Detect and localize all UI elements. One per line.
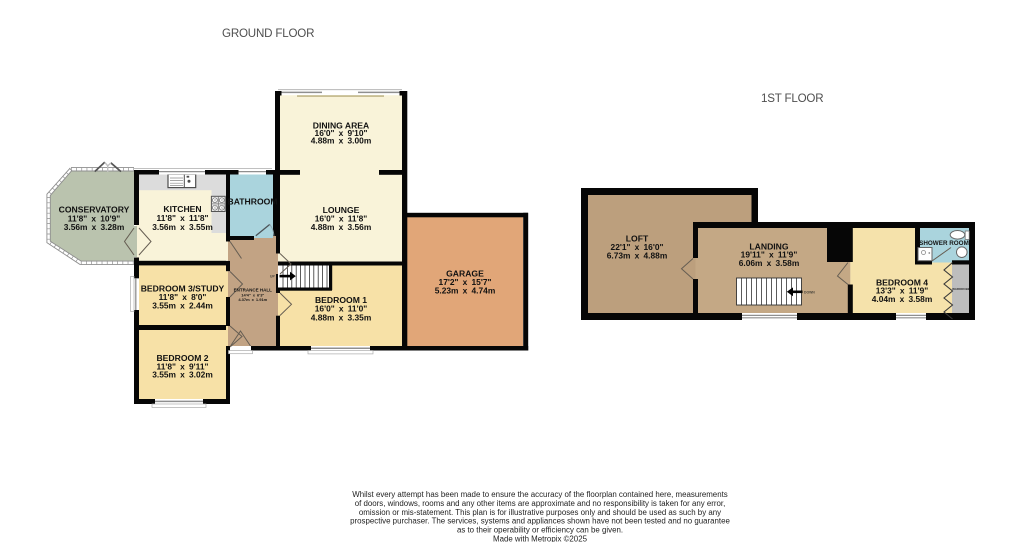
- svg-text:4.04m x 3.58m: 4.04m x 3.58m: [872, 294, 933, 304]
- svg-text:6.73m x 4.88m: 6.73m x 4.88m: [607, 251, 668, 261]
- svg-text:4.37m x 1.91m: 4.37m x 1.91m: [238, 297, 267, 302]
- svg-text:4.88m x 3.00m: 4.88m x 3.00m: [311, 136, 372, 146]
- svg-text:of doors, windows, rooms and a: of doors, windows, rooms and any other i…: [355, 499, 726, 508]
- svg-text:6.06m x 3.58m: 6.06m x 3.58m: [739, 258, 800, 268]
- svg-text:Made with Metropix ©2025: Made with Metropix ©2025: [493, 534, 588, 542]
- svg-text:DOWN: DOWN: [804, 290, 815, 294]
- svg-text:4.88m x 3.56m: 4.88m x 3.56m: [311, 222, 372, 232]
- svg-text:5.23m x 4.74m: 5.23m x 4.74m: [435, 286, 496, 296]
- svg-text:WARDROBE: WARDROBE: [952, 287, 970, 291]
- svg-text:3.56m x 3.28m: 3.56m x 3.28m: [64, 222, 125, 232]
- svg-text:3.55m x 3.02m: 3.55m x 3.02m: [152, 370, 213, 380]
- svg-text:SHOWER ROOM: SHOWER ROOM: [919, 240, 969, 247]
- svg-text:3.55m x 2.44m: 3.55m x 2.44m: [152, 301, 213, 311]
- svg-text:1ST FLOOR: 1ST FLOOR: [761, 92, 823, 105]
- svg-text:UP: UP: [270, 275, 275, 279]
- svg-text:GROUND FLOOR: GROUND FLOOR: [222, 27, 314, 40]
- svg-text:BATHROOM: BATHROOM: [228, 197, 278, 207]
- svg-text:4.88m x 3.35m: 4.88m x 3.35m: [311, 312, 372, 322]
- svg-text:omission or mis-statement. Thi: omission or mis-statement. This plan is …: [359, 508, 721, 517]
- svg-text:Whilst every attempt has been: Whilst every attempt has been made to en…: [352, 490, 728, 499]
- svg-text:3.56m x 3.55m: 3.56m x 3.55m: [152, 222, 213, 232]
- svg-text:prospective purchaser. The ser: prospective purchaser. The services, sys…: [350, 517, 730, 526]
